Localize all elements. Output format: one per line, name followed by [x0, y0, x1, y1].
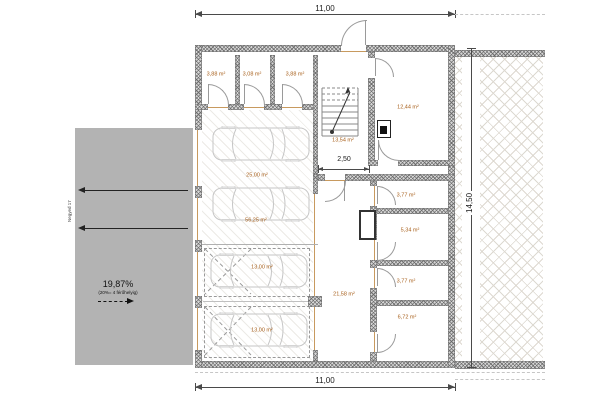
site-dashed-line [455, 379, 545, 380]
dim-hall-arrow-left [318, 167, 323, 171]
wall-corridor-top-b [345, 174, 455, 181]
dim-top-label: 11,00 [312, 5, 337, 13]
storage3-door-leaf [282, 84, 283, 104]
wall-store-divider-3 [377, 300, 448, 306]
store-b-door-leaf [377, 242, 378, 260]
dim-bottom-tick-right [455, 383, 456, 391]
dim-bottom-arrow-left [195, 384, 202, 390]
store-b-door-swing-arc [377, 242, 396, 261]
wall-hall-left [313, 55, 318, 174]
wall-top-right [366, 45, 455, 52]
dim-right-tick-bottom [467, 367, 476, 368]
dim-bottom-line [195, 387, 455, 388]
dim-right-label: 14,50 [466, 191, 474, 215]
ramp-slope-label: 19,87% [103, 280, 134, 289]
store-d-door-leaf [377, 334, 378, 352]
wall-below-room1244-b [398, 160, 455, 166]
storage3-door-swing-arc [282, 84, 303, 105]
driveway-ramp [75, 128, 193, 365]
ramp-arrow-head-2 [78, 225, 85, 231]
wall-top-left [195, 45, 341, 52]
car-symbol [212, 126, 310, 162]
wall-right [448, 45, 455, 368]
dim-top-line [195, 14, 455, 15]
car-symbol [210, 253, 308, 289]
dim-top-arrow-left [195, 11, 202, 17]
duct-shaft [359, 210, 376, 240]
wall-stores-left-d [370, 288, 377, 332]
dim-hall-label: 2,50 [334, 156, 354, 163]
store-c-door-leaf [377, 268, 378, 286]
room-label-garage-front: 25,00 m² [246, 173, 268, 179]
garden-wall-top [455, 50, 545, 57]
wall-stores-left-c [370, 260, 377, 268]
room-label-corridor: 21,58 m² [333, 292, 355, 298]
entrance-threshold [341, 51, 366, 52]
room-label-storage-2: 3,08 m² [243, 72, 262, 78]
store-a-door-swing-arc [377, 186, 396, 205]
room-label-store-a: 3,77 m² [397, 193, 416, 199]
wall-bottom [195, 361, 455, 368]
room1244-top-door-leaf [375, 58, 376, 76]
room1244-door-leaf [378, 140, 379, 160]
store-c-door-swing-arc [377, 268, 396, 287]
ramp-slope-note: (20%= 4 férőhelyig) [98, 291, 137, 296]
ramp-direction-dashed-arrow [98, 301, 128, 302]
dim-hall-arrow-right [364, 167, 369, 171]
corridor-door-swing-arc [325, 181, 346, 202]
dim-bottom-arrow-right [448, 384, 455, 390]
dim-bottom-extension-dashed [195, 372, 545, 373]
storage2-door-swing-arc [244, 84, 265, 105]
dim-hall-line [318, 169, 370, 170]
room-label-parking-1: 13,00 m² [251, 265, 273, 271]
room-label-storage-3: 3,88 m² [286, 72, 305, 78]
storage-front-lintel [200, 107, 318, 108]
corridor-door-leaf [344, 181, 345, 201]
room-label-parking-2: 13,00 m² [251, 328, 273, 334]
wall-stores-left-e [370, 352, 377, 361]
ramp-arrow-line-1 [82, 190, 188, 191]
room1244-door-swing-arc [378, 140, 399, 161]
dim-right-tick-top [467, 48, 476, 49]
wall-left-pier-3 [195, 296, 202, 308]
room1244-top-door-swing-arc [375, 58, 394, 77]
wall-left-pier-2 [195, 240, 202, 252]
storage1-door-swing-arc [208, 84, 229, 105]
dim-top-arrow-right [448, 11, 455, 17]
wall-left-bottom [195, 350, 202, 368]
wall-hall-right-b [368, 78, 375, 162]
wall-corridor-left-stub-2 [313, 350, 318, 361]
storage1-door-leaf [208, 84, 209, 104]
room-label-store-b: 5,34 m² [401, 228, 420, 234]
wall-storage-front-a [195, 104, 208, 110]
entrance-door-leaf [365, 20, 366, 45]
wall-store-divider-1 [377, 208, 448, 214]
floor-plan: 19,87% (20%= 4 férőhelyig) Negyed 17 [0, 0, 600, 400]
wall-storage-front-c [264, 104, 282, 110]
ramp-arrow-head-1 [78, 187, 85, 193]
room-label-room-top-right: 12,44 m² [397, 105, 419, 111]
pillar-parking [308, 296, 322, 307]
ramp-direction-arrow-head [127, 298, 134, 304]
entrance-door-swing-arc [341, 20, 367, 46]
wall-corridor-top-a [318, 174, 325, 181]
wall-storage-divider-1 [235, 55, 240, 104]
room-label-stair-hall: 13,54 m² [332, 138, 354, 144]
store-a-door-leaf [377, 186, 378, 204]
dim-top-extension-dashed [455, 14, 545, 15]
dim-bottom-label: 11,00 [312, 377, 337, 385]
wall-left-pier-1 [195, 186, 202, 198]
garage-parking-boundary [195, 244, 318, 245]
wall-storage-divider-2 [270, 55, 275, 104]
wall-left-top [195, 45, 202, 130]
wall-storage-front-b [228, 104, 244, 110]
ramp-arrow-line-2 [82, 228, 188, 229]
room-label-garage-main: 56,25 m² [245, 218, 267, 224]
storage2-door-leaf [244, 84, 245, 104]
chimney-shaft-fill [380, 126, 387, 134]
wall-store-divider-2 [377, 260, 448, 266]
stairs-symbol [320, 84, 360, 138]
room-label-store-d: 6,72 m² [398, 315, 417, 321]
room-label-store-c: 3,77 m² [397, 279, 416, 285]
stall-divider-line [203, 301, 313, 302]
wall-stores-left-a [370, 181, 377, 186]
street-label: Negyed 17 [68, 200, 73, 222]
store-d-door-swing-arc [377, 334, 396, 353]
room-label-storage-1: 3,88 m² [207, 72, 226, 78]
wall-hall-right-a [368, 52, 375, 58]
